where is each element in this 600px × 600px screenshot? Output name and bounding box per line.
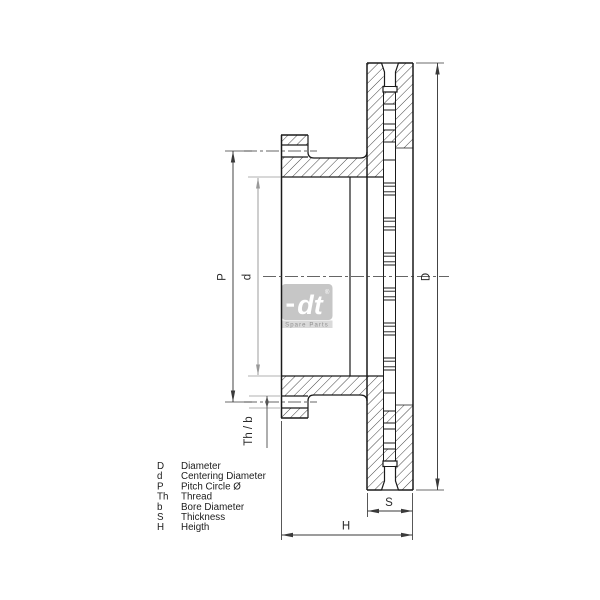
drawing-sheet: dt ® Spare Parts [0, 0, 600, 600]
legend-row: H Heigth [157, 522, 209, 533]
dimension-label-d: d [242, 274, 254, 280]
dimension-S: S [368, 493, 413, 540]
dimension-label-S: S [385, 497, 393, 509]
legend-label: Heigth [181, 522, 209, 533]
dt-logo-registered-mark: ® [325, 289, 330, 296]
brake-disc-technical-drawing: dt ® Spare Parts [0, 0, 600, 600]
legend-symbol: H [157, 522, 164, 533]
dt-logo-subtext: Spare Parts [285, 323, 329, 329]
dt-logo-dash [287, 304, 295, 307]
dt-logo-text: dt [297, 290, 323, 320]
legend: D Diameter d Centering Diameter P Pitch … [157, 461, 267, 533]
dimension-label-D: D [421, 273, 433, 281]
dimension-label-Th-b: Th / b [243, 416, 255, 445]
rim-groove-bottom [382, 461, 399, 490]
dimension-Th-b: Th / b [243, 396, 280, 448]
dt-logo-watermark: dt ® Spare Parts [282, 284, 333, 329]
dimension-label-H: H [342, 521, 350, 533]
center-lines [244, 151, 449, 402]
dimension-label-P: P [217, 273, 229, 281]
rim-groove-top [382, 63, 399, 92]
